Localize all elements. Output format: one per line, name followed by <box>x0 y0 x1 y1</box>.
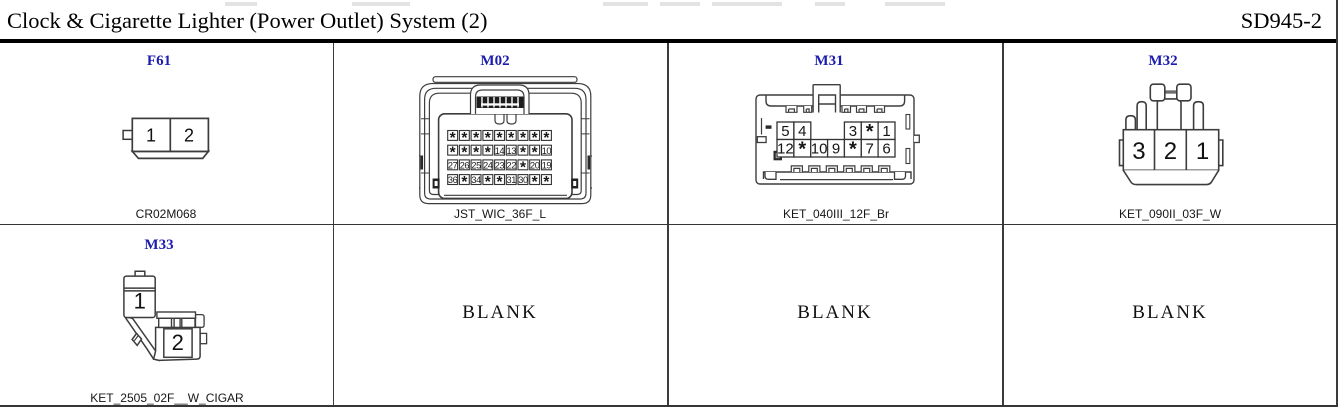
svg-text:19: 19 <box>542 161 552 171</box>
svg-text:10: 10 <box>542 146 552 156</box>
svg-text:36: 36 <box>448 175 458 185</box>
svg-text:30: 30 <box>518 175 528 185</box>
svg-text:*: * <box>543 174 550 191</box>
svg-text:*: * <box>508 130 515 147</box>
svg-text:1: 1 <box>146 126 156 146</box>
svg-text:10: 10 <box>811 141 828 158</box>
svg-text:2: 2 <box>184 126 194 146</box>
svg-text:1: 1 <box>134 289 146 314</box>
svg-text:26: 26 <box>460 161 470 171</box>
svg-text:*: * <box>450 145 457 162</box>
svg-text:*: * <box>485 145 492 162</box>
svg-text:34: 34 <box>471 175 481 185</box>
svg-text:*: * <box>798 139 806 161</box>
svg-text:1: 1 <box>1196 138 1209 165</box>
svg-text:31: 31 <box>506 175 516 185</box>
svg-text:12: 12 <box>777 141 794 158</box>
svg-text:7: 7 <box>866 141 874 158</box>
svg-text:3: 3 <box>849 123 857 140</box>
svg-text:24: 24 <box>483 161 493 171</box>
svg-text:*: * <box>496 174 503 191</box>
svg-text:22: 22 <box>506 161 516 171</box>
svg-text:*: * <box>496 130 503 147</box>
svg-text:*: * <box>849 139 857 161</box>
svg-text:13: 13 <box>506 146 516 156</box>
svg-text:2: 2 <box>1164 138 1177 165</box>
svg-text:20: 20 <box>530 161 540 171</box>
svg-text:*: * <box>520 159 527 176</box>
svg-text:*: * <box>473 145 480 162</box>
svg-text:1: 1 <box>882 123 890 140</box>
svg-text:*: * <box>532 145 539 162</box>
svg-text:*: * <box>532 174 539 191</box>
svg-text:25: 25 <box>471 161 481 171</box>
svg-text:3: 3 <box>1132 138 1145 165</box>
svg-text:5: 5 <box>781 123 789 140</box>
svg-text:27: 27 <box>448 161 458 171</box>
svg-text:*: * <box>461 145 468 162</box>
svg-text:14: 14 <box>495 146 505 156</box>
svg-text:4: 4 <box>798 123 806 140</box>
svg-text:9: 9 <box>832 141 840 158</box>
svg-text:*: * <box>461 174 468 191</box>
svg-text:2: 2 <box>172 330 184 355</box>
svg-text:6: 6 <box>882 141 890 158</box>
svg-text:*: * <box>485 174 492 191</box>
svg-text:*: * <box>543 130 550 147</box>
svg-text:23: 23 <box>495 161 505 171</box>
